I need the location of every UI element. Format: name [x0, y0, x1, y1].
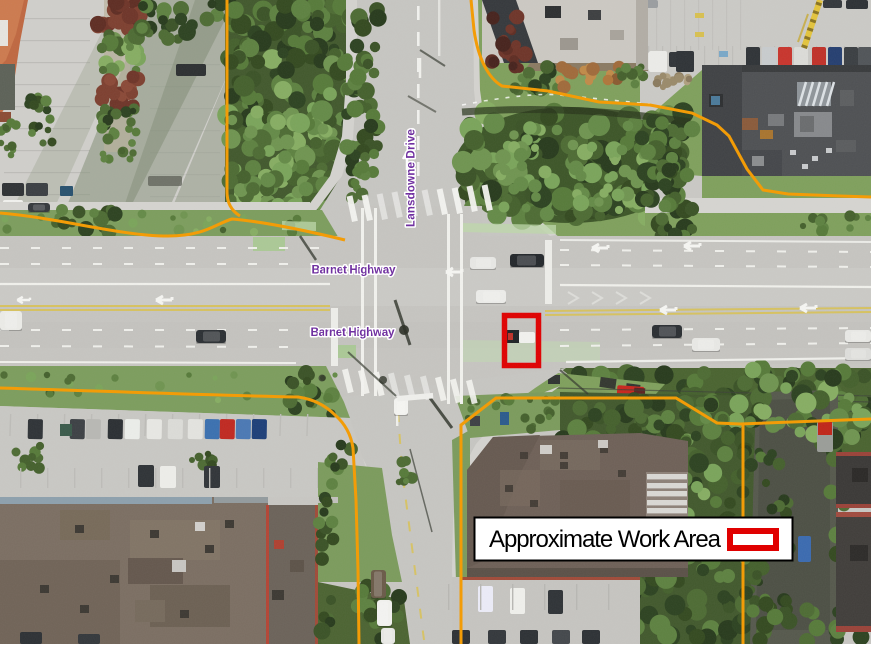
svg-text:Barnet Highway: Barnet Highway	[312, 263, 396, 277]
svg-text:Approximate Work Area: Approximate Work Area	[489, 526, 722, 553]
svg-text:Lansdowne Drive: Lansdowne Drive	[404, 129, 418, 227]
svg-text:Barnet Highway: Barnet Highway	[311, 325, 395, 339]
